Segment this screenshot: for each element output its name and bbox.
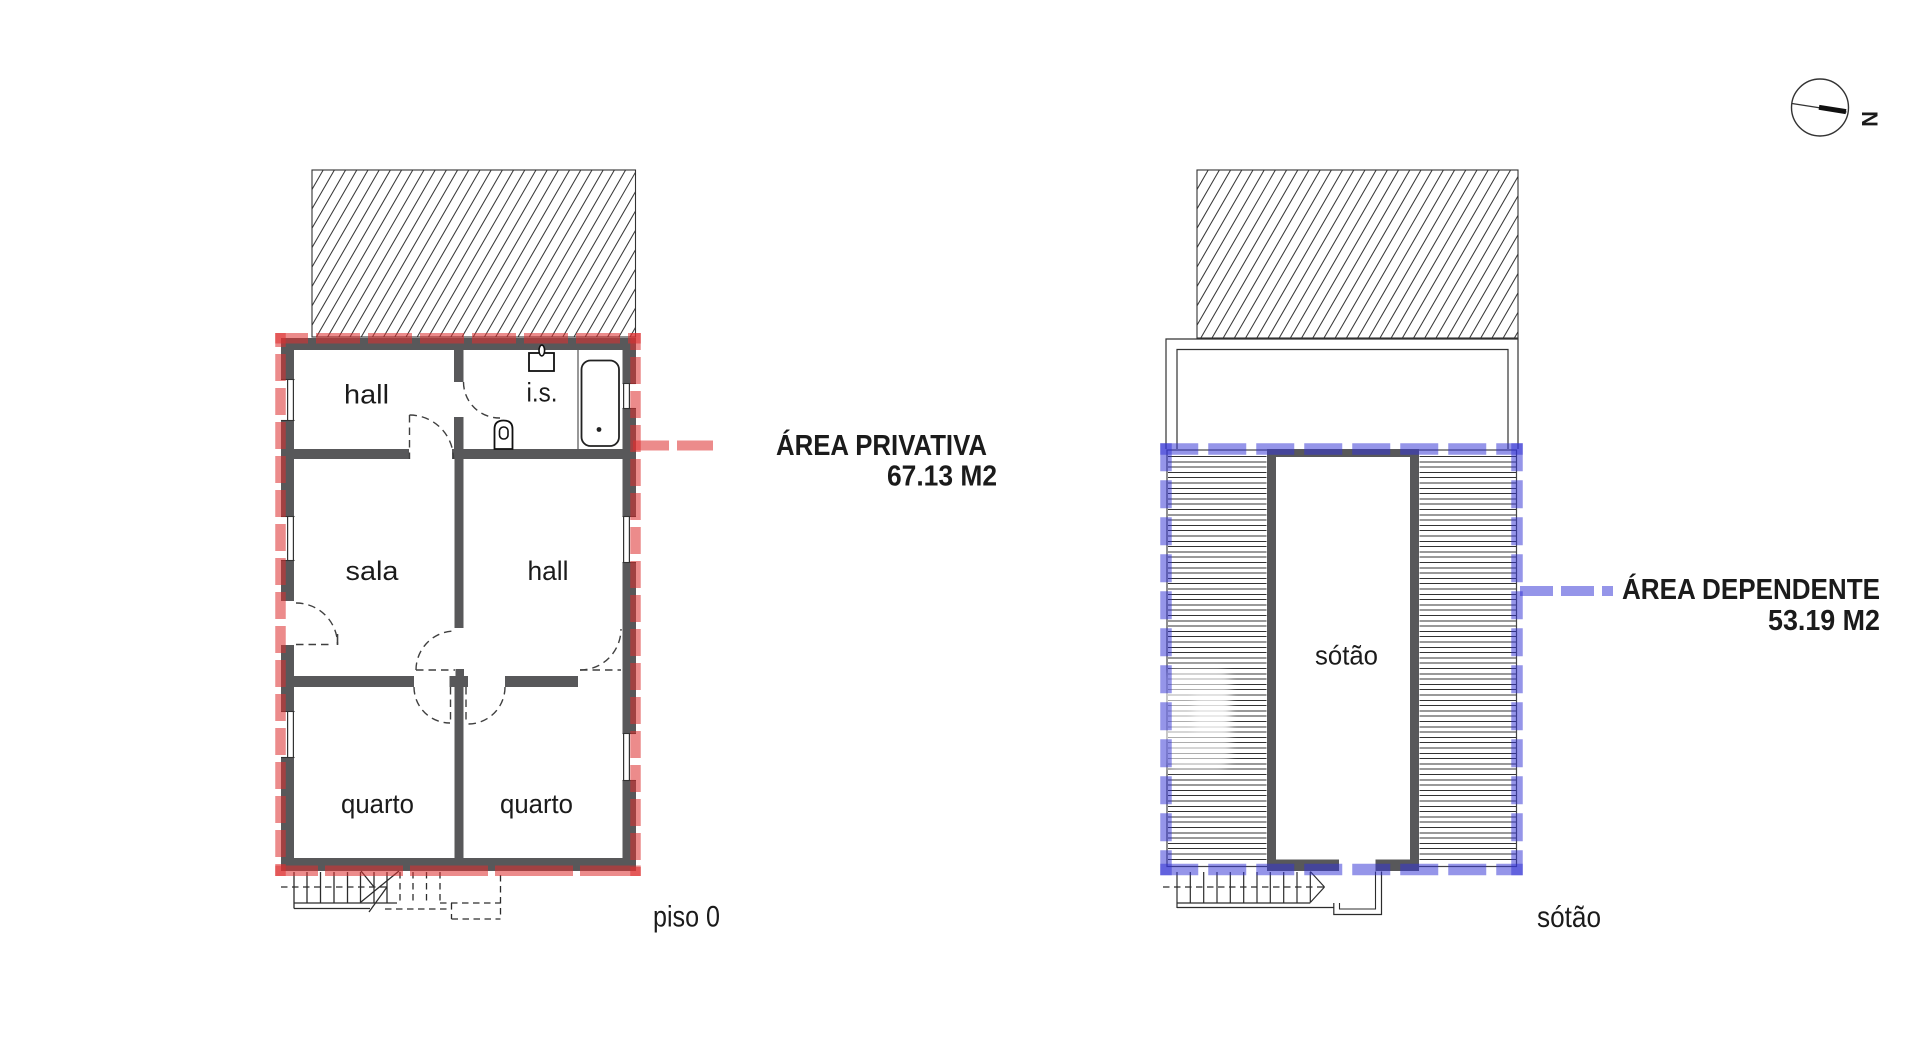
- svg-text:quarto: quarto: [500, 789, 573, 819]
- svg-text:sala: sala: [346, 556, 399, 586]
- svg-text:53.19 M2: 53.19 M2: [1768, 605, 1880, 637]
- svg-text:ÁREA PRIVATIVA: ÁREA PRIVATIVA: [776, 428, 987, 462]
- svg-text:ÁREA DEPENDENTE: ÁREA DEPENDENTE: [1622, 572, 1880, 606]
- svg-text:hall: hall: [528, 556, 569, 586]
- svg-text:quarto: quarto: [341, 789, 414, 819]
- svg-text:piso 0: piso 0: [653, 901, 720, 934]
- svg-text:sótão: sótão: [1315, 641, 1378, 671]
- svg-text:sótão: sótão: [1537, 901, 1601, 934]
- svg-text:hall: hall: [344, 380, 389, 410]
- svg-text:i.s.: i.s.: [527, 378, 558, 408]
- svg-text:67.13 M2: 67.13 M2: [887, 461, 997, 493]
- svg-text:N: N: [1857, 111, 1882, 127]
